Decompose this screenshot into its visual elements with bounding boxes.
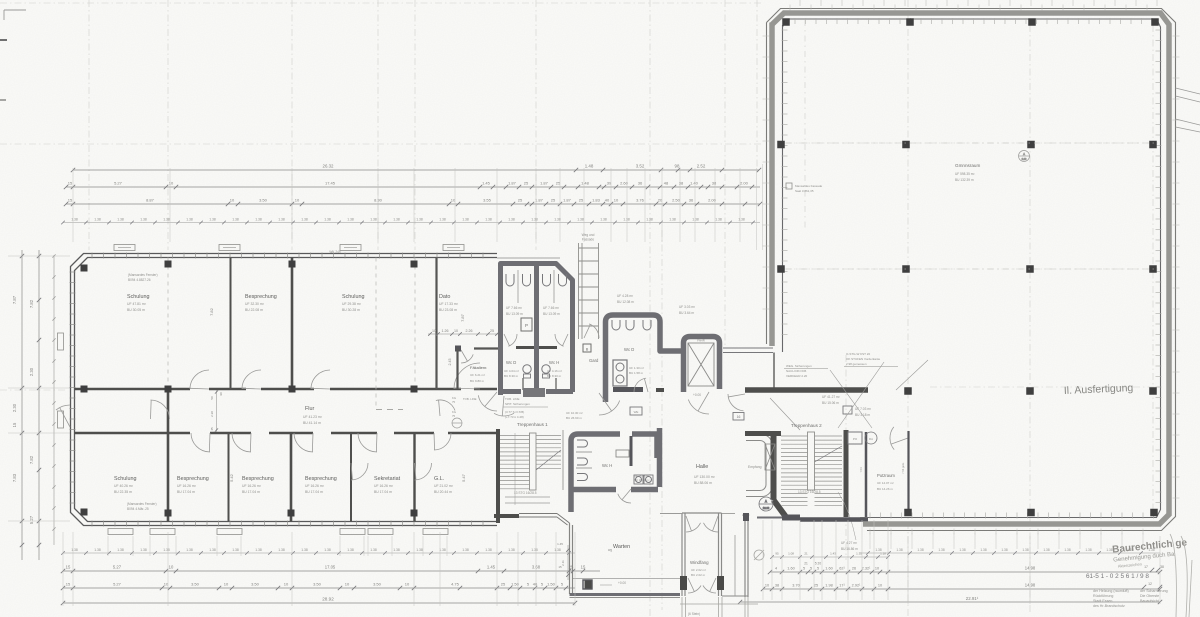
- svg-text:Putzraum: Putzraum: [877, 473, 895, 478]
- svg-text:16: 16: [737, 415, 741, 419]
- svg-text:1.38: 1.38: [462, 548, 469, 552]
- svg-text:7.54: 7.54: [859, 467, 863, 473]
- svg-text:VERKEHR 2.20: VERKEHR 2.20: [786, 374, 808, 378]
- svg-text:Schulung: Schulung: [342, 294, 364, 300]
- svg-text:3.76: 3.76: [636, 198, 645, 203]
- svg-text:2.30: 2.30: [210, 411, 214, 417]
- svg-text:14.98: 14.98: [1025, 566, 1036, 571]
- svg-text:1.48: 1.48: [585, 164, 594, 169]
- svg-text:BU 17.04 m: BU 17.04 m: [177, 490, 195, 494]
- svg-text:1.38: 1.38: [738, 218, 745, 222]
- svg-text:17: 17: [1144, 565, 1148, 569]
- svg-text:PO: PO: [853, 437, 858, 441]
- svg-text:7.54 gem.: 7.54 gem.: [901, 462, 905, 474]
- svg-text:62¹: 62¹: [839, 567, 845, 571]
- svg-text:10.30: 10.30: [763, 506, 770, 510]
- svg-text:(Mansardes Fenster): (Mansardes Fenster): [127, 502, 157, 506]
- svg-text:UF 32.30 m²: UF 32.30 m²: [245, 302, 265, 306]
- svg-text:BU 15.06 m: BU 15.06 m: [822, 401, 839, 405]
- svg-text:Wc H: Wc H: [549, 360, 559, 365]
- svg-text:WEG. Sicherungen: WEG. Sicherungen: [786, 364, 812, 368]
- svg-text:8.87: 8.87: [146, 198, 155, 203]
- svg-text:1.50: 1.50: [547, 582, 556, 587]
- svg-text:1.38: 1.38: [255, 548, 262, 552]
- svg-text:1.38: 1.38: [646, 218, 653, 222]
- svg-text:Treppenhaus 2: Treppenhaus 2: [791, 423, 822, 428]
- svg-text:1.38: 1.38: [393, 548, 400, 552]
- svg-text:2.26: 2.26: [466, 329, 473, 333]
- svg-text:25: 25: [501, 582, 506, 587]
- svg-text:98: 98: [675, 164, 680, 169]
- svg-text:Schulung: Schulung: [114, 476, 136, 482]
- svg-text:10: 10: [875, 567, 879, 571]
- svg-text:Mansardes Fassade: Mansardes Fassade: [795, 184, 823, 188]
- svg-text:UF 3.03 m²: UF 3.03 m²: [679, 305, 695, 309]
- svg-text:BU 13.09 m: BU 13.09 m: [543, 312, 560, 316]
- svg-text:1.83: 1.83: [592, 198, 601, 203]
- svg-text:OK STUFEN Vorderkante: OK STUFEN Vorderkante: [846, 357, 881, 361]
- svg-text:G.L.: G.L.: [434, 476, 444, 482]
- svg-text:A: A: [1023, 152, 1025, 156]
- svg-text:15: 15: [66, 565, 71, 570]
- svg-text:1.38: 1.38: [71, 218, 78, 222]
- svg-text:BU 22.08 m: BU 22.08 m: [245, 308, 263, 312]
- svg-text:3.55: 3.55: [483, 198, 492, 203]
- svg-text:1.38: 1.38: [94, 218, 101, 222]
- svg-text:1.38: 1.38: [508, 218, 515, 222]
- svg-text:10: 10: [284, 582, 289, 587]
- svg-text:25: 25: [569, 565, 574, 570]
- svg-text:1.60: 1.60: [787, 567, 794, 571]
- svg-text:1.87: 1.87: [535, 198, 544, 203]
- svg-text:WK 24h: WK 24h: [329, 250, 341, 254]
- svg-text:UF 6.21 m²: UF 6.21 m²: [470, 373, 485, 377]
- svg-text:5: 5: [817, 567, 819, 571]
- svg-text:Gard: Gard: [589, 358, 599, 363]
- svg-text:10: 10: [765, 584, 769, 588]
- svg-text:BU 14.26 m: BU 14.26 m: [877, 487, 893, 491]
- svg-text:1.38: 1.38: [1001, 548, 1007, 552]
- svg-text:Bauaufsicht: Bauaufsicht: [1140, 599, 1159, 603]
- svg-text:UF 16.26 m²: UF 16.26 m²: [177, 484, 197, 488]
- svg-text:UF 16.26 m²: UF 16.26 m²: [305, 484, 325, 488]
- svg-text:1.38: 1.38: [255, 218, 262, 222]
- svg-text:10: 10: [405, 582, 410, 587]
- svg-text:1.35: 1.35: [856, 552, 862, 556]
- svg-text:Rückführung: Rückführung: [1093, 594, 1113, 598]
- svg-text:BU 17.04 m: BU 17.04 m: [374, 490, 392, 494]
- svg-text:1.26: 1.26: [442, 329, 449, 333]
- svg-text:3.68: 3.68: [532, 565, 541, 570]
- svg-text:BU 13.09 m: BU 13.09 m: [506, 312, 523, 316]
- svg-text:61-5 1 - 0 2 5 6 1 / 9 8: 61-5 1 - 0 2 5 6 1 / 9 8: [1086, 573, 1149, 580]
- svg-text:1.38: 1.38: [485, 548, 492, 552]
- svg-text:1.38: 1.38: [324, 548, 331, 552]
- svg-text:1.38: 1.38: [1085, 548, 1091, 552]
- svg-text:UF 41.27 m²: UF 41.27 m²: [822, 395, 840, 399]
- svg-text:BU 9.80 m: BU 9.80 m: [470, 379, 485, 383]
- svg-text:1.38: 1.38: [917, 548, 923, 552]
- svg-text:2.32¹: 2.32¹: [862, 567, 871, 571]
- svg-text:1.38: 1.38: [186, 218, 193, 222]
- svg-text:1.38: 1.38: [416, 548, 423, 552]
- svg-text:5.27: 5.27: [114, 181, 123, 186]
- svg-text:25: 25: [579, 198, 584, 203]
- svg-text:38: 38: [712, 181, 717, 186]
- svg-text:1.38: 1.38: [347, 218, 354, 222]
- svg-text:O-STG-W KST 20: O-STG-W KST 20: [846, 352, 870, 356]
- svg-text:1.38: 1.38: [416, 218, 423, 222]
- svg-text:1.38: 1.38: [232, 548, 239, 552]
- svg-text:40: 40: [533, 582, 538, 587]
- svg-text:BU 20.44 m: BU 20.44 m: [434, 490, 452, 494]
- svg-text:10: 10: [432, 329, 436, 333]
- svg-text:Besprechung: Besprechung: [305, 476, 337, 482]
- svg-text:10: 10: [224, 582, 229, 587]
- svg-text:1.18: 1.18: [880, 552, 886, 556]
- svg-text:1.38: 1.38: [462, 218, 469, 222]
- svg-text:Stadt Essen: Stadt Essen: [1093, 599, 1112, 603]
- svg-text:1.38: 1.38: [623, 218, 630, 222]
- svg-text:1.38: 1.38: [301, 548, 308, 552]
- svg-text:25: 25: [814, 584, 818, 588]
- svg-text:1.50: 1.50: [511, 582, 520, 587]
- svg-text:1.38: 1.38: [117, 218, 124, 222]
- svg-text:48: 48: [664, 181, 669, 186]
- svg-text:22.91¹: 22.91¹: [966, 596, 979, 601]
- svg-text:Sekretariat: Sekretariat: [374, 476, 401, 482]
- svg-text:50: 50: [210, 396, 214, 400]
- svg-text:BU 1.58 m: BU 1.58 m: [629, 371, 644, 375]
- svg-text:BU 12.08 m: BU 12.08 m: [617, 300, 634, 304]
- svg-text:BU 30.28 m: BU 30.28 m: [342, 308, 360, 312]
- svg-text:1.87: 1.87: [540, 181, 549, 186]
- svg-text:2.60: 2.60: [620, 181, 629, 186]
- svg-text:5.27: 5.27: [113, 565, 122, 570]
- svg-text:15: 15: [558, 565, 562, 569]
- svg-text:1.38: 1.38: [94, 548, 101, 552]
- svg-text:5: 5: [810, 567, 812, 571]
- svg-text:10: 10: [169, 565, 174, 570]
- svg-text:7.82: 7.82: [209, 307, 214, 316]
- svg-text:UF 7.66 m²: UF 7.66 m²: [543, 306, 559, 310]
- svg-text:10: 10: [878, 584, 882, 588]
- svg-text:36: 36: [689, 198, 694, 203]
- svg-text:BU 26.90 m: BU 26.90 m: [566, 416, 582, 420]
- svg-text:12: 12: [1148, 582, 1152, 586]
- svg-text:2.50: 2.50: [672, 198, 681, 203]
- svg-text:13 STG 16/28.5: 13 STG 16/28.5: [798, 490, 821, 494]
- svg-text:BU 41.14 m: BU 41.14 m: [303, 421, 321, 425]
- svg-text:SPIT. Sicherungen: SPIT. Sicherungen: [505, 402, 530, 406]
- svg-text:38: 38: [679, 181, 684, 186]
- svg-text:BU 88.06 m: BU 88.06 m: [694, 481, 712, 485]
- svg-text:28.92: 28.92: [322, 597, 334, 602]
- svg-text:Wc D: Wc D: [506, 360, 516, 365]
- svg-text:10: 10: [295, 198, 300, 203]
- svg-text:1.38: 1.38: [938, 548, 944, 552]
- svg-text:der Scharnierung: der Scharnierung: [1140, 589, 1168, 593]
- svg-text:10: 10: [614, 198, 619, 203]
- svg-text:25: 25: [524, 181, 529, 186]
- svg-text:der Heizung (raumluft): der Heizung (raumluft): [1093, 589, 1129, 593]
- svg-text:Fassade: Fassade: [582, 238, 594, 242]
- svg-text:2.00: 2.00: [708, 198, 717, 203]
- svg-text:UF 10.30 m²: UF 10.30 m²: [566, 411, 583, 415]
- svg-text:25: 25: [518, 198, 523, 203]
- svg-text:2.00: 2.00: [740, 181, 749, 186]
- svg-text:15: 15: [581, 565, 586, 570]
- svg-text:UF 4.28 m²: UF 4.28 m²: [617, 294, 633, 298]
- svg-text:1.38: 1.38: [1043, 548, 1049, 552]
- svg-text:1.60: 1.60: [825, 567, 832, 571]
- svg-text:1.38: 1.38: [896, 548, 902, 552]
- svg-text:2.52: 2.52: [697, 164, 706, 169]
- svg-text:1.38: 1.38: [980, 548, 986, 552]
- svg-text:2.92¹: 2.92¹: [852, 584, 861, 588]
- svg-text:26: 26: [852, 567, 856, 571]
- svg-text:5 20: 5 20: [815, 562, 821, 566]
- svg-text:14.98: 14.98: [1025, 583, 1036, 588]
- svg-text:NACH DIN 636: NACH DIN 636: [786, 369, 807, 373]
- svg-text:BU 3.64 m: BU 3.64 m: [679, 311, 694, 315]
- svg-text:1.38: 1.38: [278, 548, 285, 552]
- svg-text:3.50: 3.50: [373, 582, 382, 587]
- svg-text:1.38: 1.38: [140, 548, 147, 552]
- svg-text:BU 23.08 m: BU 23.08 m: [439, 308, 457, 312]
- svg-text:TOB. LINE: TOB. LINE: [505, 397, 519, 401]
- svg-text:3.50: 3.50: [251, 582, 260, 587]
- svg-text:Treppenhaus 1: Treppenhaus 1: [517, 422, 548, 427]
- svg-text:1.38: 1.38: [186, 548, 193, 552]
- svg-text:1.38: 1.38: [301, 218, 308, 222]
- svg-text:P: P: [525, 323, 528, 328]
- svg-text:1.38: 1.38: [117, 548, 124, 552]
- svg-text:7.87: 7.87: [460, 313, 465, 322]
- svg-text:B094 4.Mär..25: B094 4.Mär..25: [127, 507, 149, 511]
- svg-text:BU 132.39 m: BU 132.39 m: [955, 178, 974, 182]
- svg-text:UF 130.00 m²: UF 130.00 m²: [694, 475, 716, 479]
- svg-text:Dato: Dato: [439, 294, 450, 300]
- svg-text:2.45: 2.45: [448, 359, 452, 366]
- svg-text:UF 16.26 m²: UF 16.26 m²: [374, 484, 394, 488]
- svg-text:1.38: 1.38: [209, 548, 216, 552]
- svg-text:Windfang: Windfang: [690, 560, 709, 565]
- svg-text:1.38: 1.38: [71, 548, 78, 552]
- svg-text:10: 10: [345, 582, 350, 587]
- svg-text:+0.00: +0.00: [618, 581, 626, 585]
- svg-text:BU 2.02 m: BU 2.02 m: [691, 573, 706, 577]
- svg-text:1.38: 1.38: [531, 548, 538, 552]
- svg-text:UF 7.66 m²: UF 7.66 m²: [506, 306, 522, 310]
- svg-text:Warten: Warten: [613, 544, 630, 550]
- svg-text:1.38: 1.38: [875, 548, 881, 552]
- svg-text:Wc D: Wc D: [624, 347, 634, 352]
- svg-text:UF 41.23 m²: UF 41.23 m²: [303, 415, 323, 419]
- svg-text:BU 22.35 m: BU 22.35 m: [114, 490, 132, 494]
- svg-text:BU 30.05 m: BU 30.05 m: [127, 308, 145, 312]
- svg-text:1.48: 1.48: [581, 181, 590, 186]
- svg-text:25: 25: [490, 329, 494, 333]
- svg-text:1.45: 1.45: [487, 565, 496, 570]
- svg-text:Flur: Flur: [305, 406, 314, 412]
- svg-text:UF 4.04 m²: UF 4.04 m²: [504, 369, 519, 373]
- svg-text:26.32: 26.32: [323, 164, 335, 169]
- svg-text:1.38: 1.38: [163, 548, 170, 552]
- svg-text:2.30: 2.30: [12, 403, 17, 412]
- svg-text:3.52: 3.52: [636, 164, 645, 169]
- svg-text:BU 17.04 m: BU 17.04 m: [305, 490, 323, 494]
- svg-text:4.75: 4.75: [451, 582, 460, 587]
- svg-text:75: 75: [452, 400, 456, 404]
- svg-text:40: 40: [605, 198, 610, 203]
- svg-text:1.38: 1.38: [715, 218, 722, 222]
- svg-text:1.38: 1.38: [393, 218, 400, 222]
- svg-text:UF 598.35 m²: UF 598.35 m²: [955, 172, 975, 176]
- svg-text:15: 15: [68, 181, 73, 186]
- svg-text:4: 4: [775, 567, 777, 571]
- svg-text:wg: wg: [608, 548, 612, 552]
- svg-text:5.42: 5.42: [229, 473, 234, 482]
- svg-text:TOB. LINE: TOB. LINE: [463, 397, 477, 401]
- svg-text:3.50: 3.50: [259, 198, 268, 203]
- svg-text:7.87: 7.87: [12, 295, 17, 304]
- svg-text:1.87: 1.87: [508, 181, 517, 186]
- svg-text:38: 38: [775, 584, 779, 588]
- svg-text:1.38: 1.38: [163, 218, 170, 222]
- svg-text:(Mansardes Fenster): (Mansardes Fenster): [128, 273, 158, 277]
- svg-text:UF 4.27 m²: UF 4.27 m²: [841, 541, 857, 545]
- svg-text:25: 25: [551, 198, 556, 203]
- svg-text:1.38: 1.38: [232, 218, 239, 222]
- svg-text:1.38: 1.38: [1064, 548, 1070, 552]
- svg-text:BU 17.04 m: BU 17.04 m: [242, 490, 260, 494]
- svg-text:1.38: 1.38: [577, 218, 584, 222]
- svg-text:Gmnnsraum: Gmnnsraum: [955, 163, 980, 168]
- svg-text:10: 10: [230, 198, 235, 203]
- svg-text:1.38: 1.38: [1022, 548, 1028, 552]
- svg-text:3.70: 3.70: [792, 584, 799, 588]
- svg-text:21: 21: [804, 562, 808, 566]
- svg-text:1.40: 1.40: [690, 181, 699, 186]
- svg-text:1.87: 1.87: [563, 198, 572, 203]
- svg-text:1.38: 1.38: [278, 218, 285, 222]
- svg-text:B: B: [586, 348, 589, 352]
- svg-text:FAHR: FAHR: [697, 339, 704, 343]
- svg-text:1.38: 1.38: [370, 218, 377, 222]
- svg-text:UF 17.33 m²: UF 17.33 m²: [439, 302, 459, 306]
- svg-text:1.98: 1.98: [825, 584, 832, 588]
- svg-text:1.38: 1.38: [485, 218, 492, 222]
- svg-text:1.45: 1.45: [557, 542, 563, 546]
- svg-text:1.38: 1.38: [531, 218, 538, 222]
- svg-text:5.27: 5.27: [113, 582, 122, 587]
- svg-text:Besprechung: Besprechung: [177, 476, 209, 482]
- svg-text:UF 1.30 m²: UF 1.30 m²: [629, 366, 644, 370]
- svg-text:7.83: 7.83: [12, 473, 17, 482]
- svg-text:(6 Stein): (6 Stein): [688, 612, 700, 616]
- svg-text:15: 15: [12, 422, 17, 427]
- svg-text:75: 75: [452, 414, 456, 418]
- svg-text:B094 4.8827.26: B094 4.8827.26: [128, 278, 151, 282]
- svg-text:UF 47.81 m²: UF 47.81 m²: [127, 302, 147, 306]
- svg-text:95: 95: [775, 552, 779, 556]
- svg-text:Die Oberste: Die Oberste: [1140, 594, 1159, 598]
- svg-text:8.30: 8.30: [374, 198, 383, 203]
- svg-text:1.38: 1.38: [209, 218, 216, 222]
- svg-text:Wc H: Wc H: [602, 463, 612, 468]
- svg-text:1.38: 1.38: [140, 218, 147, 222]
- svg-text:17.45: 17.45: [325, 181, 336, 186]
- svg-text:UF 40.26 m²: UF 40.26 m²: [114, 484, 134, 488]
- svg-text:10: 10: [454, 329, 458, 333]
- svg-text:1.38: 1.38: [439, 218, 446, 222]
- svg-text:Weg und: Weg und: [582, 233, 595, 237]
- svg-text:38: 38: [1160, 565, 1164, 569]
- svg-text:1.38: 1.38: [554, 548, 561, 552]
- svg-text:Besprechung: Besprechung: [245, 294, 277, 300]
- svg-text:Besprechung: Besprechung: [242, 476, 274, 482]
- svg-text:1.38: 1.38: [324, 218, 331, 222]
- svg-text:21: 21: [804, 552, 808, 556]
- svg-text:90: 90: [219, 392, 223, 396]
- svg-text:2.30: 2.30: [29, 367, 34, 376]
- svg-text:3.50: 3.50: [191, 582, 200, 587]
- svg-text:1.43: 1.43: [830, 552, 836, 556]
- svg-text:10: 10: [169, 181, 174, 186]
- svg-text:7.82: 7.82: [29, 299, 34, 308]
- svg-text:3.50: 3.50: [313, 582, 322, 587]
- svg-text:UF 14.07 m²: UF 14.07 m²: [877, 481, 894, 485]
- svg-text:36: 36: [638, 181, 643, 186]
- svg-text:Fäkalienr.: Fäkalienr.: [470, 365, 487, 370]
- svg-text:des Hr-Brandschutz: des Hr-Brandschutz: [1093, 604, 1125, 608]
- svg-text:15: 15: [66, 582, 71, 587]
- svg-text:UF 29.38 m²: UF 29.38 m²: [342, 302, 362, 306]
- svg-text:1.38: 1.38: [347, 548, 354, 552]
- svg-text:5: 5: [803, 567, 805, 571]
- svg-text:5.27: 5.27: [29, 515, 34, 524]
- svg-text:UF 16.26 m²: UF 16.26 m²: [242, 484, 262, 488]
- svg-text:RA: RA: [869, 437, 873, 441]
- svg-text:(3.77 S.O.S'B): (3.77 S.O.S'B): [505, 410, 524, 414]
- svg-text:1.08: 1.08: [788, 552, 794, 556]
- svg-text:7.82: 7.82: [29, 455, 34, 464]
- svg-text:17¹: 17¹: [839, 584, 845, 588]
- svg-text:Saal 3.861,35: Saal 3.861,35: [795, 189, 814, 193]
- svg-text:Schulung: Schulung: [127, 294, 149, 300]
- svg-text:5.47: 5.47: [461, 473, 466, 482]
- svg-text:1.38: 1.38: [600, 218, 607, 222]
- svg-text:+0.00: +0.00: [693, 393, 701, 397]
- svg-text:2.98 gemessen: 2.98 gemessen: [846, 362, 867, 366]
- svg-text:15: 15: [68, 198, 73, 203]
- svg-text:1.38: 1.38: [959, 548, 965, 552]
- svg-text:0.00: 0.00: [1022, 158, 1027, 161]
- svg-text:1.38: 1.38: [370, 548, 377, 552]
- svg-text:1.38: 1.38: [692, 218, 699, 222]
- svg-text:1.45: 1.45: [482, 181, 491, 186]
- svg-text:WE: WE: [634, 410, 639, 414]
- svg-text:UF 21.02 m²: UF 21.02 m²: [434, 484, 454, 488]
- svg-text:Empfang: Empfang: [748, 465, 762, 469]
- svg-text:17.05: 17.05: [325, 565, 336, 570]
- svg-text:BU 16.86 m: BU 16.86 m: [841, 547, 858, 551]
- svg-text:UF 2.02 m²: UF 2.02 m²: [691, 568, 706, 572]
- svg-text:13 STG 16/28.5: 13 STG 16/28.5: [514, 491, 537, 495]
- svg-text:1.38: 1.38: [508, 548, 515, 552]
- svg-text:BU 8.30 m: BU 8.30 m: [504, 374, 519, 378]
